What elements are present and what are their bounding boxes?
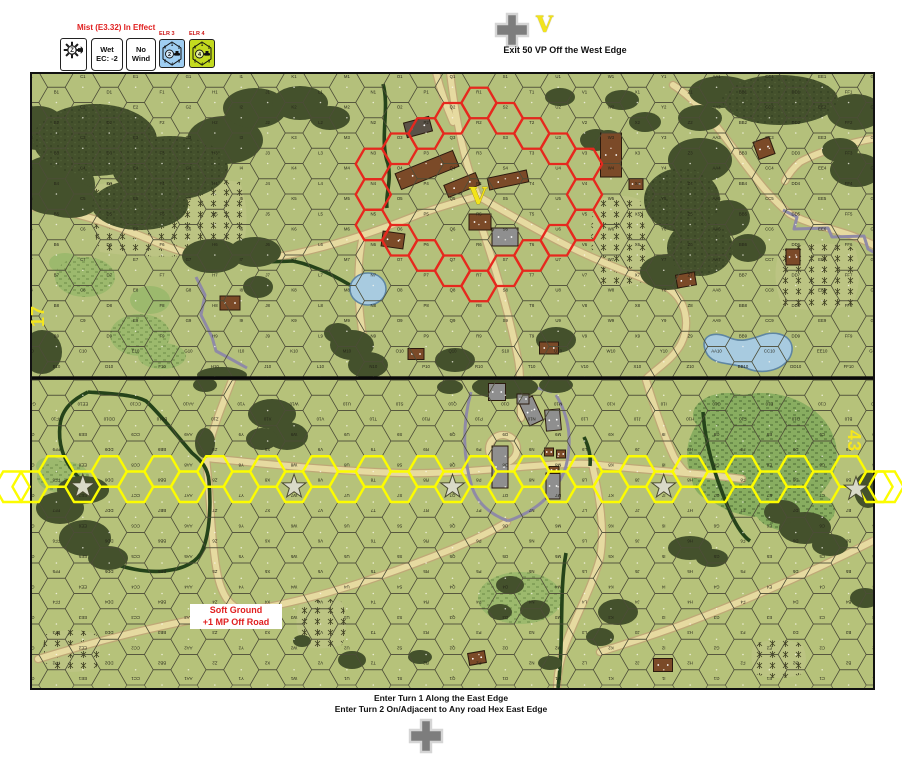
hex-label: S4 <box>396 584 402 589</box>
hex-label: D7 <box>792 508 798 513</box>
hex-label: H9 <box>687 447 693 452</box>
hex-label: H3 <box>212 150 218 155</box>
hex-label: J7 <box>265 272 270 277</box>
hex-label: Q9 <box>450 318 456 323</box>
hex-label: I1 <box>661 676 665 681</box>
hex-label: G3 <box>713 615 719 620</box>
hex[interactable] <box>805 42 840 73</box>
hex-label: O9 <box>397 318 403 323</box>
hex-label: FF2 <box>52 661 60 666</box>
hex-label: I7 <box>239 257 243 262</box>
hex-label: R5 <box>423 569 429 574</box>
hex-label: W5 <box>290 554 297 559</box>
hex-label: BB10 <box>156 417 167 422</box>
asl-hex-map[interactable]: A1A2A3A4A5A6A7A8A9A10B1B2B3B4B5B6B7B8B9B… <box>0 0 902 761</box>
hex-label: B2 <box>845 661 851 666</box>
hex-label: FF4 <box>52 600 60 605</box>
hex-label: L7 <box>582 508 587 513</box>
hex-label: F7 <box>740 508 746 513</box>
hex-label: Z3 <box>688 150 694 155</box>
hex-label: Z5 <box>212 569 218 574</box>
hex-label: U6 <box>555 227 561 232</box>
hex-label: EE2 <box>78 645 87 650</box>
hex-label: S3 <box>396 615 402 620</box>
hex[interactable] <box>224 42 259 73</box>
hex-label: F6 <box>160 242 166 247</box>
elr-right-counter[interactable]: 6 1 2 3 4 5 4 <box>189 39 215 68</box>
hex-label: BB1 <box>157 691 166 696</box>
hex-label: N2 <box>528 661 534 666</box>
hex-label: O9 <box>502 432 508 437</box>
hex-label: B2 <box>54 120 60 125</box>
hex-label: U5 <box>555 196 561 201</box>
hex-label: Z1 <box>212 691 218 696</box>
hex-label: E1 <box>133 74 139 79</box>
hex-label: O1 <box>397 74 403 79</box>
hex-label: B10 <box>53 364 61 369</box>
hex-label: J1 <box>634 691 639 696</box>
hex-label: H3 <box>687 630 693 635</box>
hex-label: C1 <box>80 74 86 79</box>
weather-line2: EC: -2 <box>96 55 118 64</box>
hex-label: Z8 <box>212 478 218 483</box>
hex-label: P9 <box>423 333 429 338</box>
hex-label: C6 <box>80 227 86 232</box>
hex-label: C5 <box>80 196 86 201</box>
hex-label: DD4 <box>791 181 800 186</box>
hex-label: V4 <box>317 600 323 605</box>
hex-label: DD5 <box>104 569 113 574</box>
hex-label: DD8 <box>104 478 113 483</box>
hex-label: Q2 <box>450 105 456 110</box>
hex-label: M1 <box>344 74 351 79</box>
hex-label: O1 <box>502 676 508 681</box>
hex-label: F10 <box>739 417 747 422</box>
hex-label: S8 <box>396 462 402 467</box>
building <box>469 214 491 230</box>
hex-label: G5 <box>186 196 192 201</box>
hex-label: T1 <box>529 89 535 94</box>
hex-label: K1 <box>608 676 614 681</box>
hex-label: T5 <box>370 569 376 574</box>
hex-label: U9 <box>555 318 561 323</box>
hex-label: AA6 <box>184 523 193 528</box>
hex-label: S2 <box>396 645 402 650</box>
hex-label: FF10 <box>844 364 855 369</box>
hex-label: H8 <box>687 478 693 483</box>
objective-letter-top: V <box>536 12 553 38</box>
hex-label: K5 <box>608 554 614 559</box>
hex-label: T7 <box>370 508 376 513</box>
hex-label: L4 <box>582 600 587 605</box>
hex-label: D2 <box>106 120 112 125</box>
hex-label: D4 <box>792 600 798 605</box>
hex-label: Q8 <box>449 462 455 467</box>
hex-label: GG9 <box>870 318 880 323</box>
hex[interactable] <box>857 42 892 73</box>
hex-label: I9 <box>661 432 665 437</box>
hex-label: Q5 <box>450 196 456 201</box>
hex-label: G2 <box>186 105 192 110</box>
hex-label: V2 <box>317 661 323 666</box>
hex-label: Z3 <box>212 630 218 635</box>
hex-label: Y5 <box>661 196 667 201</box>
hex-label: G10 <box>184 349 193 354</box>
hex-label: E9 <box>133 318 139 323</box>
hex-label: P6 <box>423 242 429 247</box>
hex-label: B5 <box>845 569 851 574</box>
hex-label: F1 <box>160 89 166 94</box>
hex-label: O8 <box>397 288 403 293</box>
hex-label: I10 <box>238 349 245 354</box>
hex-label: B6 <box>54 242 60 247</box>
hex-label: FF5 <box>52 569 60 574</box>
hex-label: S8 <box>503 288 509 293</box>
hex-label: S10 <box>501 349 509 354</box>
hex-label: O6 <box>397 227 403 232</box>
hex-label: K8 <box>608 462 614 467</box>
hex-label: AA5 <box>713 196 722 201</box>
hex-label: L2 <box>582 661 587 666</box>
hex-label: F7 <box>160 272 166 277</box>
village-objective-letter: V <box>468 183 488 210</box>
hex-label: FF7 <box>52 508 60 513</box>
hex-label: J3 <box>265 150 270 155</box>
hex-label: O5 <box>397 196 403 201</box>
hex-label: O10 <box>501 401 510 406</box>
hex-label: X4 <box>635 181 641 186</box>
hex-label: L10 <box>580 417 588 422</box>
hex-label: C8 <box>80 288 86 293</box>
hex-label: G7 <box>186 257 192 262</box>
tank-icon <box>174 51 180 56</box>
hex-label: D10 <box>105 364 113 369</box>
hex-label: E9 <box>766 432 772 437</box>
hex-label: I6 <box>239 227 243 232</box>
hex-label: F10 <box>158 364 166 369</box>
hex-label: L1 <box>582 691 587 696</box>
hex-label: Y8 <box>661 288 667 293</box>
hex-label: EE4 <box>818 166 827 171</box>
hex-label: B3 <box>845 630 851 635</box>
hex-label: J9 <box>634 447 639 452</box>
hex-label: K10 <box>290 349 298 354</box>
hex-label: J5 <box>634 569 639 574</box>
hex-label: FF10 <box>51 417 62 422</box>
hex-label: EE10 <box>817 349 828 354</box>
hex-label: EE6 <box>818 227 827 232</box>
hex-label: X1 <box>264 691 270 696</box>
hex-label: CC4 <box>131 584 140 589</box>
weather-counter[interactable]: Wet EC: -2 <box>91 38 123 71</box>
hex-label: K6 <box>608 523 614 528</box>
enter-turn2-note: Enter Turn 2 On/Adjacent to Any road Hex… <box>316 704 566 714</box>
hex-label: T2 <box>529 120 535 125</box>
hex-label: Y1 <box>661 74 667 79</box>
hex-label: BB3 <box>157 630 166 635</box>
hex-label: J6 <box>634 539 639 544</box>
hex-label: B8 <box>845 478 851 483</box>
hex-label: E7 <box>133 257 139 262</box>
hex-label: CC5 <box>765 196 774 201</box>
offmap-exit-hex[interactable] <box>0 472 30 503</box>
hex-label: AA9 <box>713 318 722 323</box>
hex-label: X9 <box>264 447 270 452</box>
hex-label: U7 <box>344 493 350 498</box>
hex-label: U1 <box>344 676 350 681</box>
hex-label: L2 <box>318 120 323 125</box>
hex[interactable] <box>382 42 417 73</box>
elr-right-label: ELR 4 <box>189 31 205 37</box>
hex-label: P8 <box>476 478 482 483</box>
hex-label: G1 <box>186 74 192 79</box>
hex-label: GG2 <box>25 645 35 650</box>
hex-label: Z1 <box>688 89 694 94</box>
hex-label: O5 <box>502 554 508 559</box>
hex-label: S2 <box>503 105 509 110</box>
hex-label: AA4 <box>713 166 722 171</box>
hex-label: DD7 <box>791 272 800 277</box>
hex-label: Q10 <box>448 349 457 354</box>
hex-label: W5 <box>608 196 615 201</box>
hex-label: X5 <box>264 569 270 574</box>
hex-label: C2 <box>819 645 825 650</box>
hex-label: L6 <box>582 539 587 544</box>
hex[interactable] <box>329 42 364 73</box>
hex-label: O2 <box>397 105 403 110</box>
hex-label: W1 <box>290 676 297 681</box>
hex-label: G1 <box>713 676 719 681</box>
hex-label: V8 <box>317 478 323 483</box>
hex-label: M9 <box>344 318 351 323</box>
hex-label: U1 <box>555 74 561 79</box>
hex-label: H2 <box>212 120 218 125</box>
hex-label: O6 <box>502 523 508 528</box>
hex-label: B5 <box>54 211 60 216</box>
hex-label: W3 <box>608 135 615 140</box>
hex-label: FF5 <box>845 211 853 216</box>
hex-label: S4 <box>503 166 509 171</box>
hex-label: AA1 <box>713 74 722 79</box>
hex-label: Q7 <box>450 257 456 262</box>
hex-label: R3 <box>423 630 429 635</box>
hex-label: E8 <box>766 462 772 467</box>
hex-label: I5 <box>661 554 665 559</box>
hex-label: R2 <box>476 120 482 125</box>
hex-label: E8 <box>133 288 139 293</box>
hex-label: E10 <box>765 401 773 406</box>
hex-label: EE5 <box>78 554 87 559</box>
hex-label: M8 <box>344 288 351 293</box>
hex-label: Z7 <box>212 508 218 513</box>
hex[interactable] <box>12 42 47 73</box>
hex-label: Q1 <box>450 74 456 79</box>
hex-label: M3 <box>344 135 351 140</box>
hex-label: Y10 <box>660 349 668 354</box>
hex-label: L5 <box>318 211 323 216</box>
hex-label: FF1 <box>52 691 60 696</box>
hex-label: Z9 <box>688 333 694 338</box>
hex-label: K1 <box>291 74 297 79</box>
hex[interactable] <box>276 42 311 73</box>
hex-label: Z7 <box>688 272 694 277</box>
hex-label: V10 <box>581 364 589 369</box>
hex-label: FF6 <box>52 539 60 544</box>
wind-direction-counter[interactable]: Z <box>60 38 87 71</box>
hex-label: T9 <box>529 333 535 338</box>
hex-label: N9 <box>371 333 377 338</box>
hex-label: FF9 <box>52 447 60 452</box>
hex-label: M6 <box>555 523 562 528</box>
hex-label: P1 <box>423 89 429 94</box>
hex-label: BB4 <box>157 600 166 605</box>
hex-label: BB4 <box>739 181 748 186</box>
hex-label: D9 <box>792 447 798 452</box>
hex-label: U2 <box>555 105 561 110</box>
hex-label: EE1 <box>818 74 827 79</box>
hex-label: Q8 <box>450 288 456 293</box>
soft-ground-line1: Soft Ground <box>190 605 282 617</box>
hex-label: M9 <box>555 432 562 437</box>
hex-label: G9 <box>713 432 719 437</box>
hex-label: Q6 <box>450 227 456 232</box>
hex-label: EE10 <box>77 401 88 406</box>
mist-note: Mist (E3.32) In Effect <box>77 23 155 32</box>
hex-label: EE3 <box>818 135 827 140</box>
hex-label: M7 <box>344 257 351 262</box>
hex-label: D1 <box>792 691 798 696</box>
hex-label: K10 <box>607 401 615 406</box>
hex-label: L3 <box>318 150 323 155</box>
hex-label: R7 <box>476 272 482 277</box>
hex-label: E4 <box>133 166 139 171</box>
hex-label: V5 <box>582 211 588 216</box>
hex-label: I3 <box>661 615 665 620</box>
hex-label: K6 <box>291 227 297 232</box>
hex-label: D10 <box>791 417 799 422</box>
hex-label: AA8 <box>713 288 722 293</box>
hex-label: P4 <box>423 181 429 186</box>
hex-label: M10 <box>553 401 562 406</box>
hex-label: G9 <box>186 318 192 323</box>
hex-label: X10 <box>263 417 271 422</box>
hex-label: AA4 <box>184 584 193 589</box>
hex-label: G3 <box>186 135 192 140</box>
hex-label: P2 <box>476 661 482 666</box>
hex-label: BB2 <box>739 120 748 125</box>
hex-label: BB5 <box>157 569 166 574</box>
hex[interactable] <box>699 42 734 73</box>
hex-label: W4 <box>608 166 615 171</box>
hex-label: AA1 <box>184 676 193 681</box>
hex-label: T5 <box>529 211 535 216</box>
hex-label: P5 <box>423 211 429 216</box>
hex-label: Y8 <box>238 462 244 467</box>
hex-label: W2 <box>608 105 615 110</box>
hex-label: B8 <box>54 303 60 308</box>
hex-label: Z10 <box>686 364 694 369</box>
hex-label: J10 <box>633 417 641 422</box>
hex-label: D6 <box>106 242 112 247</box>
hex-label: D6 <box>792 539 798 544</box>
hex-label: H5 <box>212 211 218 216</box>
hex-label: S1 <box>396 676 402 681</box>
hex-label: BB8 <box>157 478 166 483</box>
hex-label: R9 <box>476 333 482 338</box>
hex-label: M2 <box>555 645 562 650</box>
hex-label: Z5 <box>688 211 694 216</box>
hex-label: Q9 <box>449 432 455 437</box>
hex[interactable] <box>752 42 787 73</box>
hex-label: U3 <box>555 135 561 140</box>
hex-label: C4 <box>80 166 86 171</box>
hex-label: DD3 <box>791 150 800 155</box>
hex-label: B7 <box>54 272 60 277</box>
hex-label: AA5 <box>184 554 193 559</box>
hex-label: K2 <box>291 105 297 110</box>
hex-label: U8 <box>555 288 561 293</box>
arrow-right-icon <box>78 46 83 54</box>
building <box>545 448 554 456</box>
hex-label: H10 <box>686 417 694 422</box>
hex-label: M4 <box>555 584 562 589</box>
hex-label: D7 <box>106 272 112 277</box>
hex-label: DD7 <box>104 508 113 513</box>
hex-label: K3 <box>291 135 297 140</box>
scenario-page: A1A2A3A4A5A6A7A8A9A10B1B2B3B4B5B6B7B8B9B… <box>0 0 902 761</box>
hex-label: C4 <box>819 584 825 589</box>
elr-hex-icon: 6 1 2 3 4 5 2 <box>160 40 184 67</box>
hex-label: P5 <box>476 569 482 574</box>
hex-label: D8 <box>792 478 798 483</box>
hex-label: M5 <box>344 196 351 201</box>
hex-label: N10 <box>369 364 377 369</box>
hex-label: CC2 <box>765 105 774 110</box>
hex-label: J6 <box>265 242 270 247</box>
hex-label: M6 <box>344 227 351 232</box>
hex-label: G4 <box>713 584 719 589</box>
hex-label: C1 <box>819 676 825 681</box>
hex-label: N8 <box>371 303 377 308</box>
hex-label: N5 <box>371 211 377 216</box>
tank-icon <box>204 51 210 56</box>
hex-label: T8 <box>370 478 376 483</box>
elr-left-counter[interactable]: 6 1 2 3 4 5 2 <box>159 39 185 68</box>
hex-label: E3 <box>766 615 772 620</box>
hex-label: B9 <box>54 333 60 338</box>
hex-label: Z6 <box>212 539 218 544</box>
hex-label: FF1 <box>845 89 853 94</box>
wind-counter[interactable]: No Wind <box>126 38 156 71</box>
hex-label: AA3 <box>713 135 722 140</box>
hex-label: F6 <box>740 539 746 544</box>
hex-label: S5 <box>503 196 509 201</box>
hex-label: R4 <box>423 600 429 605</box>
hex-label: C3 <box>80 135 86 140</box>
hex-label: FF8 <box>845 303 853 308</box>
hex-label: G8 <box>713 462 719 467</box>
hex-label: K2 <box>608 645 614 650</box>
hex-label: GG10 <box>24 401 36 406</box>
hex-label: W9 <box>608 318 615 323</box>
hex-label: GG8 <box>870 288 880 293</box>
hex-label: BB6 <box>739 242 748 247</box>
hex-label: G7 <box>713 493 719 498</box>
hex-label: J10 <box>264 364 272 369</box>
hex-label: FF3 <box>52 630 60 635</box>
hex-label: I9 <box>239 318 243 323</box>
hex-label: K4 <box>608 584 614 589</box>
